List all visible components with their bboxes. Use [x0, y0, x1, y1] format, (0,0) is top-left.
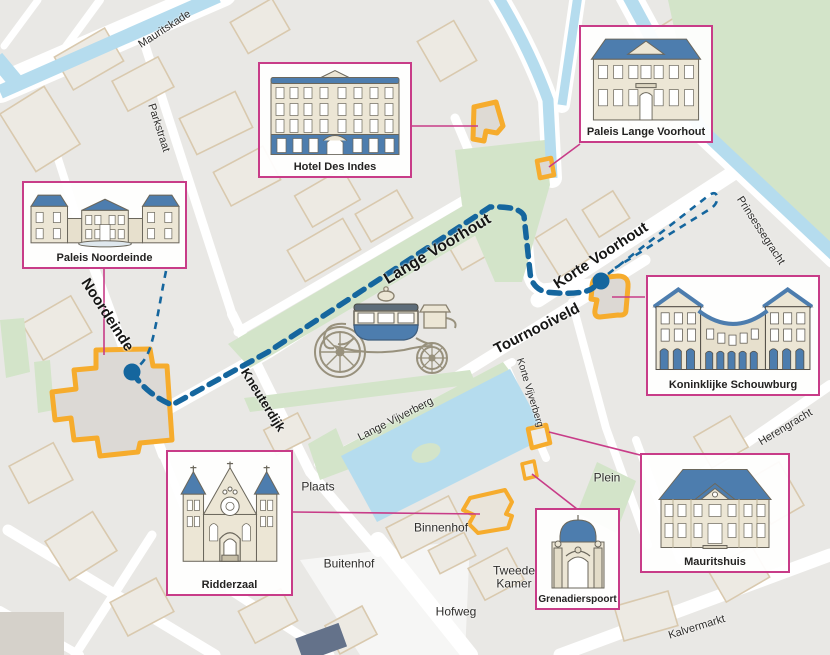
card-label: Mauritshuis	[684, 554, 746, 568]
card-label: Koninklijke Schouwburg	[669, 377, 797, 391]
marker-paleis-lange-voorhout	[537, 158, 554, 178]
card-label: Grenadierspoort	[538, 592, 616, 605]
paleis-noordeinde-illustration	[29, 187, 181, 250]
card-label: Ridderzaal	[202, 577, 258, 591]
route-end-dot	[593, 273, 610, 290]
card-hotel-des-indes: Hotel Des Indes	[258, 62, 412, 178]
card-paleis-lange-voorhout: Paleis Lange Voorhout	[579, 25, 713, 143]
card-paleis-noordeinde: Paleis Noordeinde	[22, 181, 187, 269]
marker-mauritshuis	[528, 425, 550, 448]
koninklijke-schouwburg-illustration	[652, 281, 814, 377]
hotel-des-indes-illustration	[265, 68, 405, 159]
card-label: Hotel Des Indes	[294, 159, 377, 173]
paleis-lange-voorhout-illustration	[585, 31, 707, 124]
prinsjesdag-route-map: MauritskadeParkstraatNoordeindeKneuterdi…	[0, 0, 830, 655]
grenadierspoort-illustration	[541, 514, 615, 592]
card-label: Paleis Lange Voorhout	[587, 124, 705, 138]
marker-binnenhof	[463, 490, 512, 533]
mauritshuis-illustration	[645, 459, 785, 554]
card-label: Paleis Noordeinde	[57, 250, 153, 264]
card-ridderzaal: Ridderzaal	[166, 450, 293, 596]
card-koninklijke-schouwburg: Koninklijke Schouwburg	[646, 275, 820, 396]
card-mauritshuis: Mauritshuis	[640, 453, 790, 573]
ridderzaal-illustration	[173, 456, 287, 577]
card-grenadierspoort: Grenadierspoort	[535, 508, 620, 610]
route-start-dot	[124, 364, 141, 381]
